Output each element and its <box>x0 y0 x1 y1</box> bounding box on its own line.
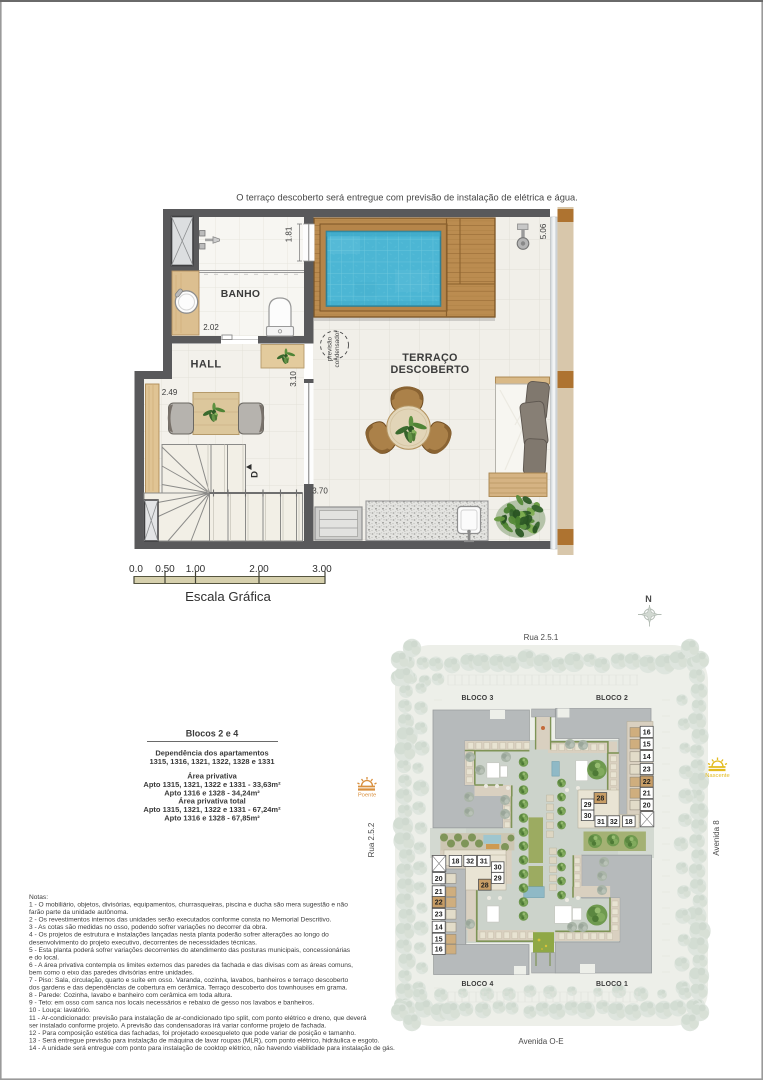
svg-text:Rua 2.5.1: Rua 2.5.1 <box>524 633 559 642</box>
svg-text:28: 28 <box>597 796 605 803</box>
svg-text:21: 21 <box>643 791 651 798</box>
svg-text:15: 15 <box>643 741 651 748</box>
svg-text:21: 21 <box>435 889 443 896</box>
svg-text:9 - Teto: em osso com sanca no: 9 - Teto: em osso com sanca nos locais n… <box>29 1000 314 1007</box>
svg-text:30: 30 <box>494 865 502 872</box>
svg-text:BLOCO 3: BLOCO 3 <box>461 695 493 702</box>
svg-text:6 - A área privativa contempla: 6 - A área privativa contempla os limite… <box>29 962 353 969</box>
svg-text:14: 14 <box>643 754 651 761</box>
svg-text:5.06: 5.06 <box>539 223 548 239</box>
svg-text:11 - Ar-condicionado: previsão: 11 - Ar-condicionado: previsão para inst… <box>29 1015 367 1022</box>
svg-text:28: 28 <box>481 882 489 889</box>
svg-text:O terraço descoberto será entr: O terraço descoberto será entregue com p… <box>236 193 578 203</box>
svg-text:0.0: 0.0 <box>129 564 143 575</box>
svg-text:8 - Parede: Cozinha, lavabo e: 8 - Parede: Cozinha, lavabo e banheiro c… <box>29 992 233 999</box>
svg-text:Avenida 8: Avenida 8 <box>712 820 721 856</box>
svg-text:31: 31 <box>480 859 488 866</box>
svg-text:7 - Piso: Sala, circulação, qu: 7 - Piso: Sala, circulação, quarto e suí… <box>29 977 348 984</box>
svg-text:TERRAÇO: TERRAÇO <box>402 352 457 364</box>
svg-text:D: D <box>250 471 261 478</box>
svg-text:3.70: 3.70 <box>312 487 328 496</box>
svg-text:BLOCO 2: BLOCO 2 <box>596 695 628 702</box>
svg-text:Apto 1316 e 1328 - 67,85m²: Apto 1316 e 1328 - 67,85m² <box>164 814 260 823</box>
svg-text:1.00: 1.00 <box>186 564 206 575</box>
svg-text:31: 31 <box>597 819 605 826</box>
svg-text:dos gardens e das dependências: dos gardens e das dependências de cobert… <box>29 985 348 992</box>
svg-text:32: 32 <box>466 859 474 866</box>
svg-text:2.00: 2.00 <box>249 564 269 575</box>
svg-text:Poente: Poente <box>358 793 376 799</box>
svg-text:18: 18 <box>625 819 633 826</box>
svg-text:22: 22 <box>643 779 651 786</box>
svg-text:12 - Para composição estética: 12 - Para composição estética das fachad… <box>29 1030 356 1037</box>
svg-text:1315, 1316, 1321, 1322, 1328 e: 1315, 1316, 1321, 1322, 1328 e 1331 <box>149 757 274 766</box>
svg-text:3 - As cotas são medidas no os: 3 - As cotas são medidas no osso, podend… <box>29 924 267 931</box>
svg-text:29: 29 <box>494 876 502 883</box>
svg-text:2.02: 2.02 <box>203 323 219 332</box>
svg-text:2 - Os revestimentos internos: 2 - Os revestimentos internos das unidad… <box>29 917 332 924</box>
svg-text:0.50: 0.50 <box>155 564 175 575</box>
svg-text:Escala Gráfica: Escala Gráfica <box>185 589 271 604</box>
svg-text:HALL: HALL <box>191 359 222 371</box>
svg-text:Nascente: Nascente <box>705 773 730 779</box>
svg-text:DESCOBERTO: DESCOBERTO <box>391 364 470 376</box>
svg-text:30: 30 <box>584 813 592 820</box>
svg-text:4 - Os projetos de estrutura e: 4 - Os projetos de estrutura e instalaçõ… <box>29 932 329 939</box>
svg-text:14 - A unidade será entregue c: 14 - A unidade será entregue com ponto p… <box>29 1045 395 1052</box>
svg-text:previsão: previsão <box>327 336 334 361</box>
svg-text:3.10: 3.10 <box>289 371 298 387</box>
svg-text:23: 23 <box>435 912 443 919</box>
svg-text:e do local.: e do local. <box>29 954 59 961</box>
svg-text:BANHO: BANHO <box>221 289 261 300</box>
svg-text:Blocos 2 e 4: Blocos 2 e 4 <box>186 729 239 739</box>
svg-text:ser instalado conforme projeto: ser instalado conforme projeto. A previs… <box>29 1022 326 1029</box>
svg-text:2.49: 2.49 <box>162 388 178 397</box>
svg-text:13 - Será entregue previsão pa: 13 - Será entregue previsão para instala… <box>29 1037 380 1044</box>
svg-text:20: 20 <box>435 876 443 883</box>
svg-text:23: 23 <box>643 767 651 774</box>
svg-text:1 - O mobiliário, objetos, div: 1 - O mobiliário, objetos, divisórias, e… <box>29 902 348 909</box>
svg-text:condensador: condensador <box>334 330 341 368</box>
svg-text:32: 32 <box>610 819 618 826</box>
svg-text:3.00: 3.00 <box>312 564 332 575</box>
svg-text:16: 16 <box>643 730 651 737</box>
svg-text:BLOCO 4: BLOCO 4 <box>461 981 493 988</box>
svg-text:16: 16 <box>435 947 443 954</box>
svg-text:10 - Louça: lavatório.: 10 - Louça: lavatório. <box>29 1007 91 1014</box>
svg-text:N: N <box>645 594 652 604</box>
svg-text:bem como o eixo das paredes di: bem como o eixo das paredes divisórias e… <box>29 970 194 977</box>
svg-text:1.81: 1.81 <box>285 226 294 242</box>
svg-text:Rua 2.5.2: Rua 2.5.2 <box>367 822 376 857</box>
svg-text:Avenida O-E: Avenida O-E <box>518 1037 563 1046</box>
svg-text:29: 29 <box>584 802 592 809</box>
svg-text:farão parte da unidade autônom: farão parte da unidade autônoma. <box>29 909 129 916</box>
svg-text:BLOCO 1: BLOCO 1 <box>596 981 628 988</box>
svg-text:Notas:: Notas: <box>29 894 48 901</box>
svg-text:15: 15 <box>435 936 443 943</box>
svg-text:18: 18 <box>452 859 460 866</box>
svg-text:desenvolvimento do projeto exe: desenvolvimento do projeto executivo, de… <box>29 939 257 946</box>
svg-text:5 - Esta planta poderá sofrer: 5 - Esta planta poderá sofrer variações … <box>29 947 351 954</box>
svg-text:22: 22 <box>435 900 443 907</box>
svg-text:20: 20 <box>643 802 651 809</box>
svg-text:14: 14 <box>435 924 443 931</box>
